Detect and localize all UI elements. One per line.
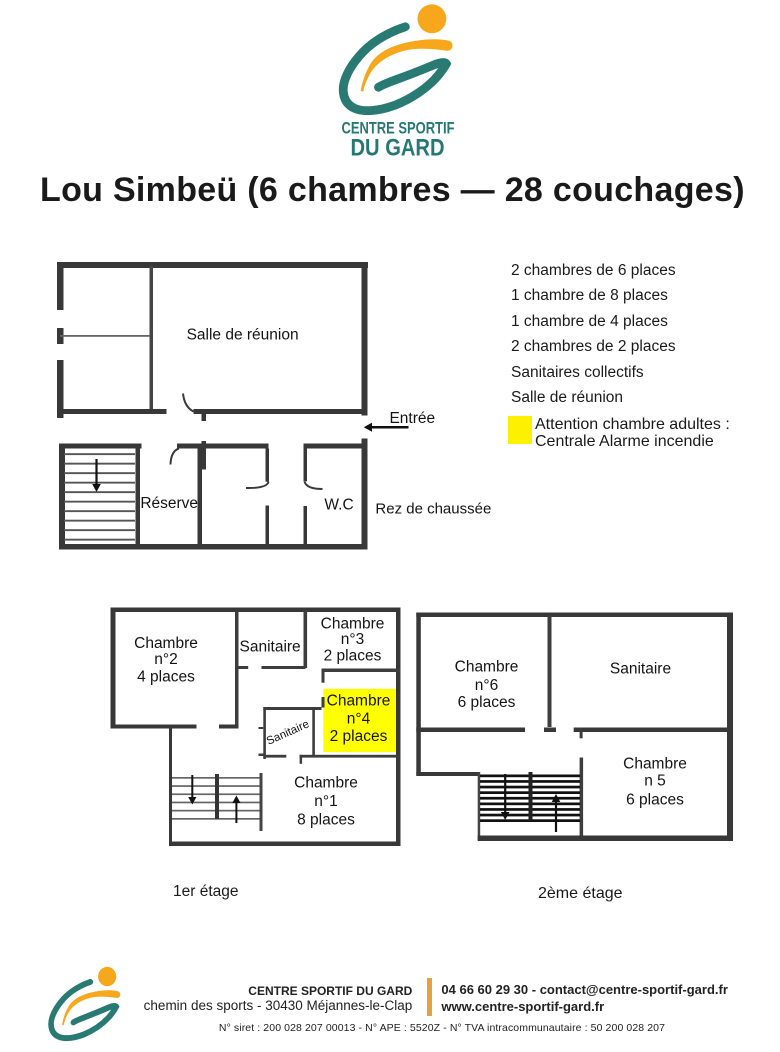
svg-text:Sanitaire: Sanitaire — [610, 661, 671, 678]
svg-text:Chambre: Chambre — [327, 693, 391, 710]
svg-text:Chambre: Chambre — [623, 756, 687, 773]
svg-text:Rez de chaussée: Rez de chaussée — [375, 501, 491, 518]
svg-text:8 places: 8 places — [297, 812, 355, 829]
svg-text:Sanitaire: Sanitaire — [265, 718, 311, 747]
svg-text:Chambre: Chambre — [134, 635, 198, 652]
svg-text:4 places: 4 places — [137, 669, 195, 686]
svg-text:Réserve: Réserve — [140, 495, 198, 512]
svg-text:Chambre: Chambre — [321, 616, 385, 633]
svg-text:2 places: 2 places — [330, 728, 388, 745]
svg-text:n°4: n°4 — [347, 711, 371, 728]
svg-text:Chambre: Chambre — [455, 659, 519, 676]
svg-text:Chambre: Chambre — [294, 775, 358, 792]
svg-text:n°3: n°3 — [341, 631, 364, 648]
svg-text:Salle de réunion: Salle de réunion — [187, 327, 299, 344]
svg-text:6 places: 6 places — [626, 792, 684, 809]
svg-text:DU GARD: DU GARD — [351, 135, 445, 162]
svg-text:n°2: n°2 — [154, 651, 177, 668]
svg-text:Entrée: Entrée — [389, 410, 435, 427]
svg-text:n 5: n 5 — [644, 773, 666, 790]
svg-text:n°6: n°6 — [475, 677, 498, 694]
svg-text:n°1: n°1 — [314, 793, 337, 810]
svg-text:Sanitaire: Sanitaire — [240, 639, 301, 656]
svg-text:W.C: W.C — [324, 497, 353, 514]
svg-text:6 places: 6 places — [458, 694, 516, 711]
svg-text:2 places: 2 places — [324, 648, 382, 665]
